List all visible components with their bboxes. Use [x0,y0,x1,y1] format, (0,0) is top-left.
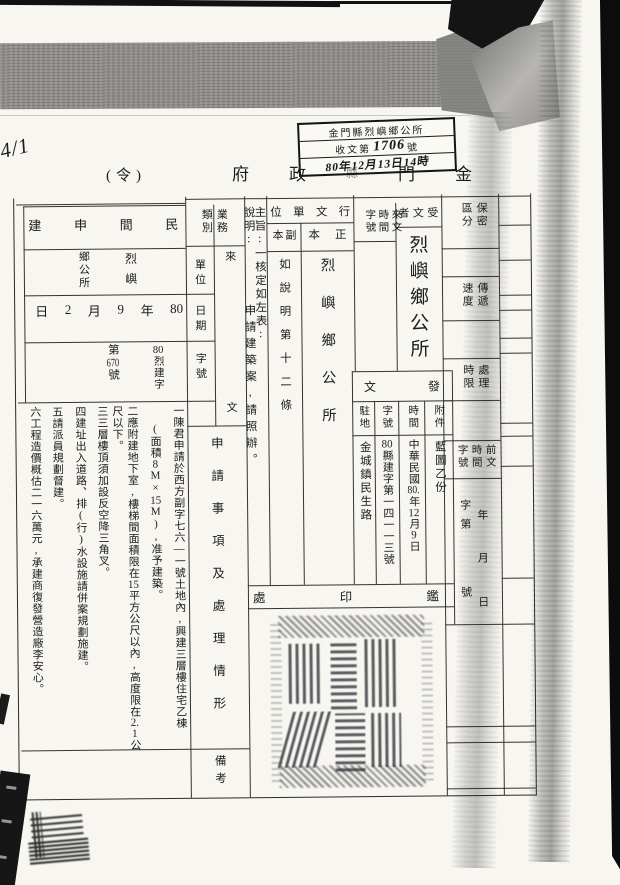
copy-value: 如說明第十二條 [277,258,292,423]
application-text-col: 六工程造價概估二一六萬元,承建商復發營造廠李安心。 [28,406,44,758]
grid-line [300,223,304,585]
seal-noise-right [421,622,434,780]
seal-noise-top [278,615,424,638]
time-value: 中華民國80.年12月9日 [406,439,420,553]
grid-line [500,436,532,437]
prev-year: 年 [475,509,488,520]
grid-line [499,295,531,296]
grid-line [500,353,532,354]
scan-noise-band [0,41,492,110]
grid-line [354,241,396,242]
grid-line [352,370,452,372]
speed-label: 傳遞速度 [459,282,489,312]
application-text-col: 一陳君申請於西方副字七六—一號土地內,興建三層樓住宅乙棟 [171,405,187,757]
grid-line [23,206,26,402]
scan-edge-line [330,1,465,4]
grid-line [498,225,530,226]
grid-line [352,434,452,436]
receipt-number: 1706 [372,137,406,155]
grid-line [266,196,271,585]
recipient-value: 烈嶼鄉公所 [405,235,428,365]
grid-line [244,196,251,797]
scan-corner-strip [0,771,30,885]
grid-line [442,320,499,322]
original-value: 烈嶼鄉公所 [318,257,336,445]
incoming-label: 來文時間字號 [360,209,402,239]
incoming-span-label: 來文 [222,250,239,552]
grid-line [443,400,500,402]
copy-label: 本副 [272,227,296,243]
number-value-main: 第670號 [106,343,120,382]
dispatch-label: 位單文行 [270,203,350,220]
number-label-left: 字號 [194,353,207,383]
explanation-text: 申請建築案,請照辦。 [242,304,257,470]
prev-no: 號 [459,586,472,597]
grid-line [499,260,531,261]
grid-line [24,248,186,251]
order-label: (令) [106,164,146,185]
prev-word: 字第 [458,499,471,537]
classification-label: 保密區分 [458,202,488,232]
grid-line [23,205,185,208]
scan-black-bar [598,0,620,878]
application-text-col: 五請派員規劃督建。 [50,406,66,758]
category-label: 業務類別 [198,208,228,238]
official-seal [270,612,434,792]
grid-line [186,245,245,247]
grid-line [352,400,452,402]
seal-glyph [335,713,366,771]
grid-line [502,578,534,579]
seal-glyph [330,639,357,709]
grid-line [443,440,500,442]
seal-glyph [278,711,334,768]
recipient-label: 者文受 [398,204,438,220]
grid-line [446,726,535,728]
application-text-col: 二應附建地下室,樓梯間面積限在15平方公尺以內,高度限在2.1公 [125,405,141,757]
explanation-label: 說明: [241,206,255,247]
scan-edge-line [0,0,340,7]
grid-line [187,425,246,427]
partial-stamp-mark [26,807,97,871]
unit-value-right: 烈嶼 [123,252,137,292]
grid-line [498,194,505,795]
grid-line [500,423,532,424]
prev-doc-label: 前文時間字號 [455,444,497,474]
grid-line [442,276,499,278]
scanned-document-page: 金門縣烈嶼鄉公所 收文第 1706 號 80年12月13日14時 4/1 (令)… [0,0,620,885]
grid-line [267,250,354,252]
seal-glyph [371,713,402,767]
application-text-col: 尺以下。 [110,405,126,757]
items-label: 申請事項及處理情形 [208,436,225,729]
grid-line [424,401,427,584]
grid-line [398,401,401,584]
original-label: 本正 [308,226,346,242]
application-text-col: (面積8M×15M),准予建築。 [148,405,164,775]
number-value-prefix: 80烈建字 [152,345,164,390]
grid-line [499,338,531,339]
grid-line [442,248,499,250]
grid-line [266,222,353,224]
seal-section-label: 處印鑑 [253,586,439,605]
seal-glyph [288,644,323,704]
unit-value-left: 鄉公所 [77,251,90,290]
grid-line [185,196,530,200]
grid-line [443,358,500,360]
scan-edge-mark [0,693,10,724]
seal-glyph [364,639,397,707]
grid-line [444,478,501,480]
form-table: 建申間民 烈嶼 鄉公所 日2月9年80 80烈建字 第670號 一陳君申請於西方… [13,194,537,801]
receipt-prefix: 收文第 [335,140,372,156]
grid-line [452,370,455,624]
grid-line [353,195,356,371]
unit-label: 單位 [193,259,206,289]
issue-label: 文發 [364,376,440,395]
remarks-label: 備考 [212,754,226,789]
grid-line [248,606,454,609]
application-text-col: 三三層樓頂須加設反空降三角叉。 [95,406,111,758]
attachment-value: 藍圖乙份 [432,440,446,494]
receipt-suffix: 號 [407,138,420,153]
station-value: 金城鎮民生路 [357,441,371,522]
grid-line [18,401,215,404]
grid-line [374,401,377,584]
number-label: 字號 [380,405,392,430]
scan-faint-line [0,115,470,116]
station-label: 駐地 [357,405,369,430]
grid-line [441,194,448,795]
application-text-col: 四建址出入道路、排(行)水設施請併案規劃施建。 [73,406,89,758]
prev-month: 月 [476,552,489,563]
deadline-label: 處理時限 [460,364,490,394]
grid-line [445,624,534,626]
grid-line [352,371,355,584]
attachment-label: 附件 [432,404,444,429]
grid-line [446,742,535,744]
number-value: 80縣建字第一四一一三號 [380,439,394,565]
time-label: 時間 [406,405,418,430]
grid-line [501,466,533,467]
page-marker: 4/1 [0,133,32,164]
date-value: 日2月9年80 [35,299,183,320]
category-value: 建申間民 [28,213,178,234]
grid-line [447,788,536,790]
agency-title: 府政縣門金 [232,161,472,183]
prev-day: 日 [476,596,489,607]
grid-line [499,310,531,311]
date-label: 日期 [193,305,206,335]
